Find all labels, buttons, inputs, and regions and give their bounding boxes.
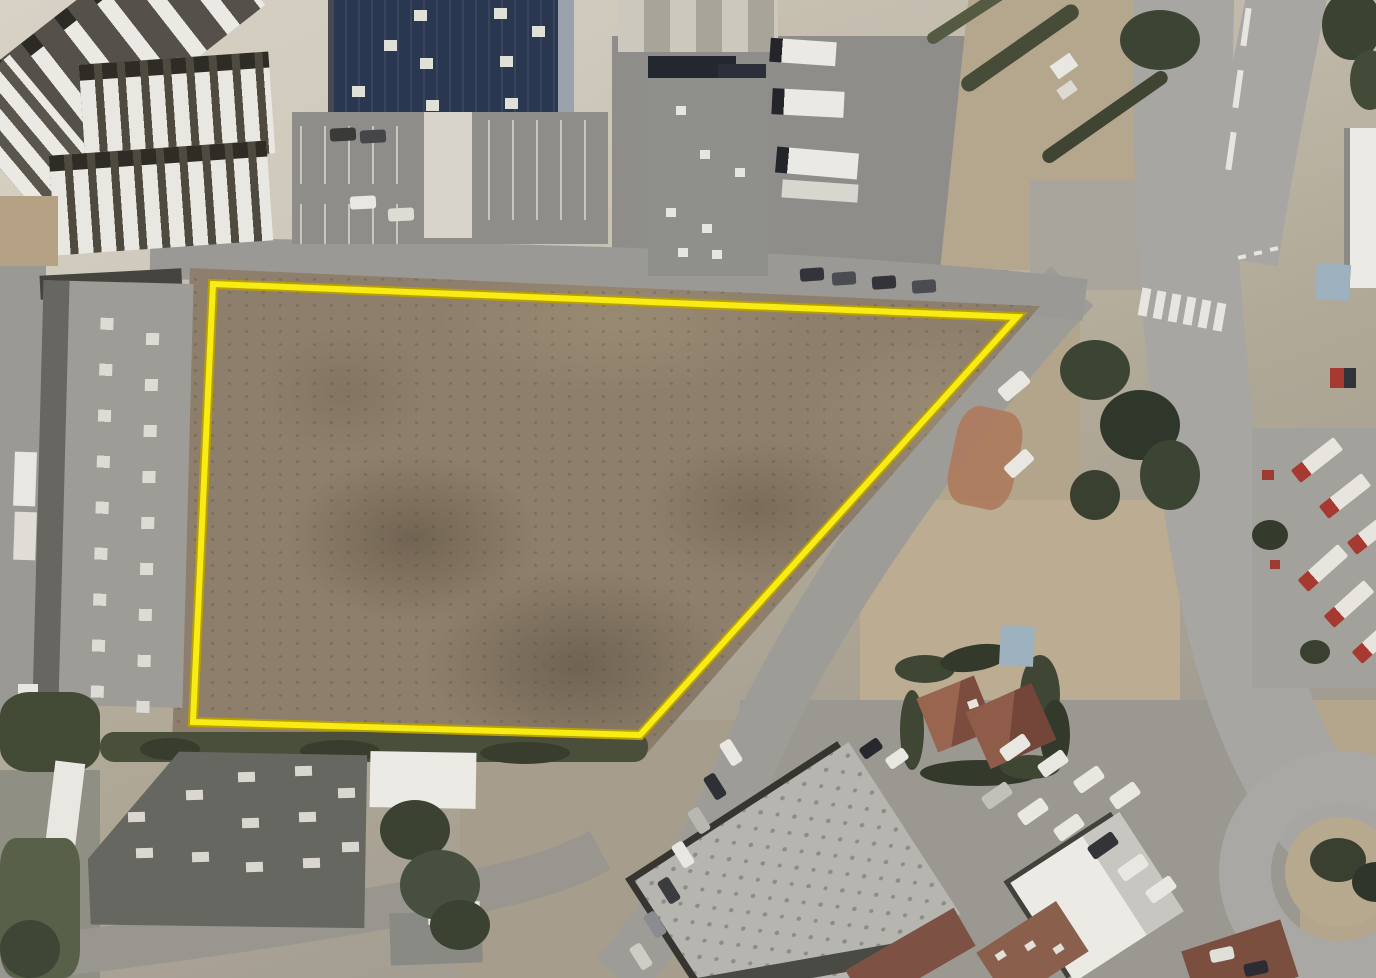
parcel-outline (193, 284, 1017, 735)
parcel-outline-casing (193, 284, 1017, 735)
parcel-annotation-layer (0, 0, 1376, 978)
aerial-photo-scene (0, 0, 1376, 978)
